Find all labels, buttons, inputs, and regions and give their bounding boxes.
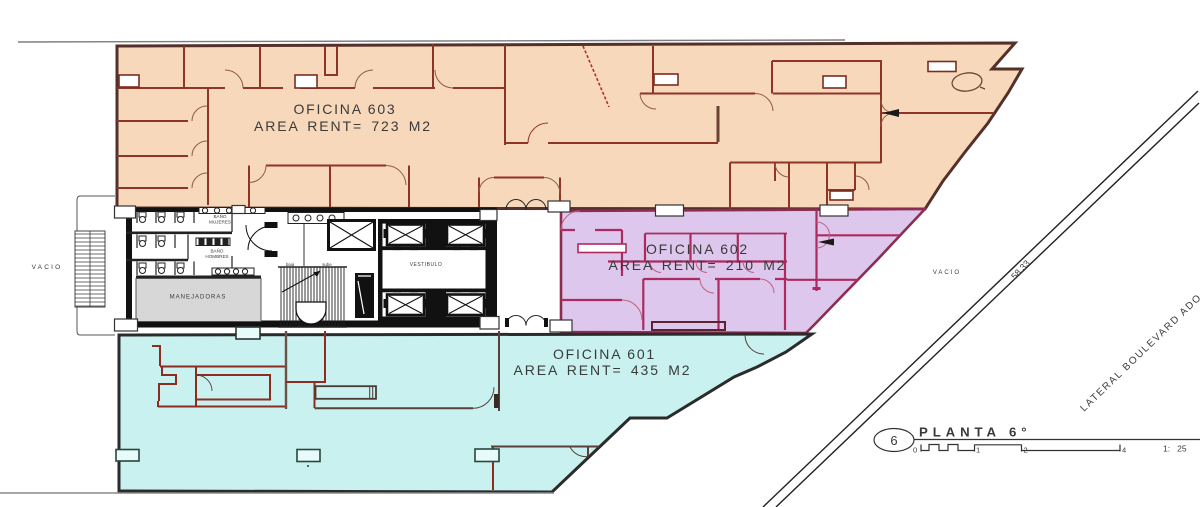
- svg-text:1: 1: [976, 446, 980, 455]
- svg-text:PLANTA 6°: PLANTA 6°: [919, 425, 1031, 440]
- svg-text:VACIO: VACIO: [32, 264, 63, 271]
- svg-text:VACIO: VACIO: [933, 270, 961, 276]
- svg-text:VESTIBULO: VESTIBULO: [410, 262, 443, 268]
- svg-text:AREA RENT= 210 M2: AREA RENT= 210 M2: [609, 257, 787, 273]
- svg-text:0: 0: [913, 446, 917, 455]
- svg-text:OFICINA 602: OFICINA 602: [646, 241, 749, 257]
- svg-text:OFICINA 601: OFICINA 601: [553, 346, 656, 362]
- svg-text:OFICINA 603: OFICINA 603: [293, 101, 396, 117]
- svg-text:4: 4: [1122, 446, 1126, 455]
- svg-text:LATERAL BOULEVARD ADO: LATERAL BOULEVARD ADO: [1078, 292, 1200, 414]
- svg-text:AREA RENT= 435 M2: AREA RENT= 435 M2: [514, 362, 692, 378]
- svg-text:6: 6: [890, 433, 897, 448]
- svg-text:MANEJADORAS: MANEJADORAS: [170, 295, 227, 301]
- svg-text:BAÑO: BAÑO: [213, 213, 226, 219]
- svg-text:1: 25: 1: 25: [1163, 444, 1187, 454]
- svg-text:HOMBRES: HOMBRES: [205, 254, 228, 259]
- svg-text:58.33: 58.33: [1009, 258, 1032, 281]
- svg-text:sube: sube: [322, 262, 332, 267]
- svg-text:MUJERES: MUJERES: [209, 220, 231, 225]
- svg-text:BAÑO: BAÑO: [210, 248, 223, 254]
- svg-text:2: 2: [1024, 446, 1028, 455]
- svg-text:AREA RENT= 723 M2: AREA RENT= 723 M2: [254, 118, 432, 134]
- svg-text:baja: baja: [286, 262, 295, 267]
